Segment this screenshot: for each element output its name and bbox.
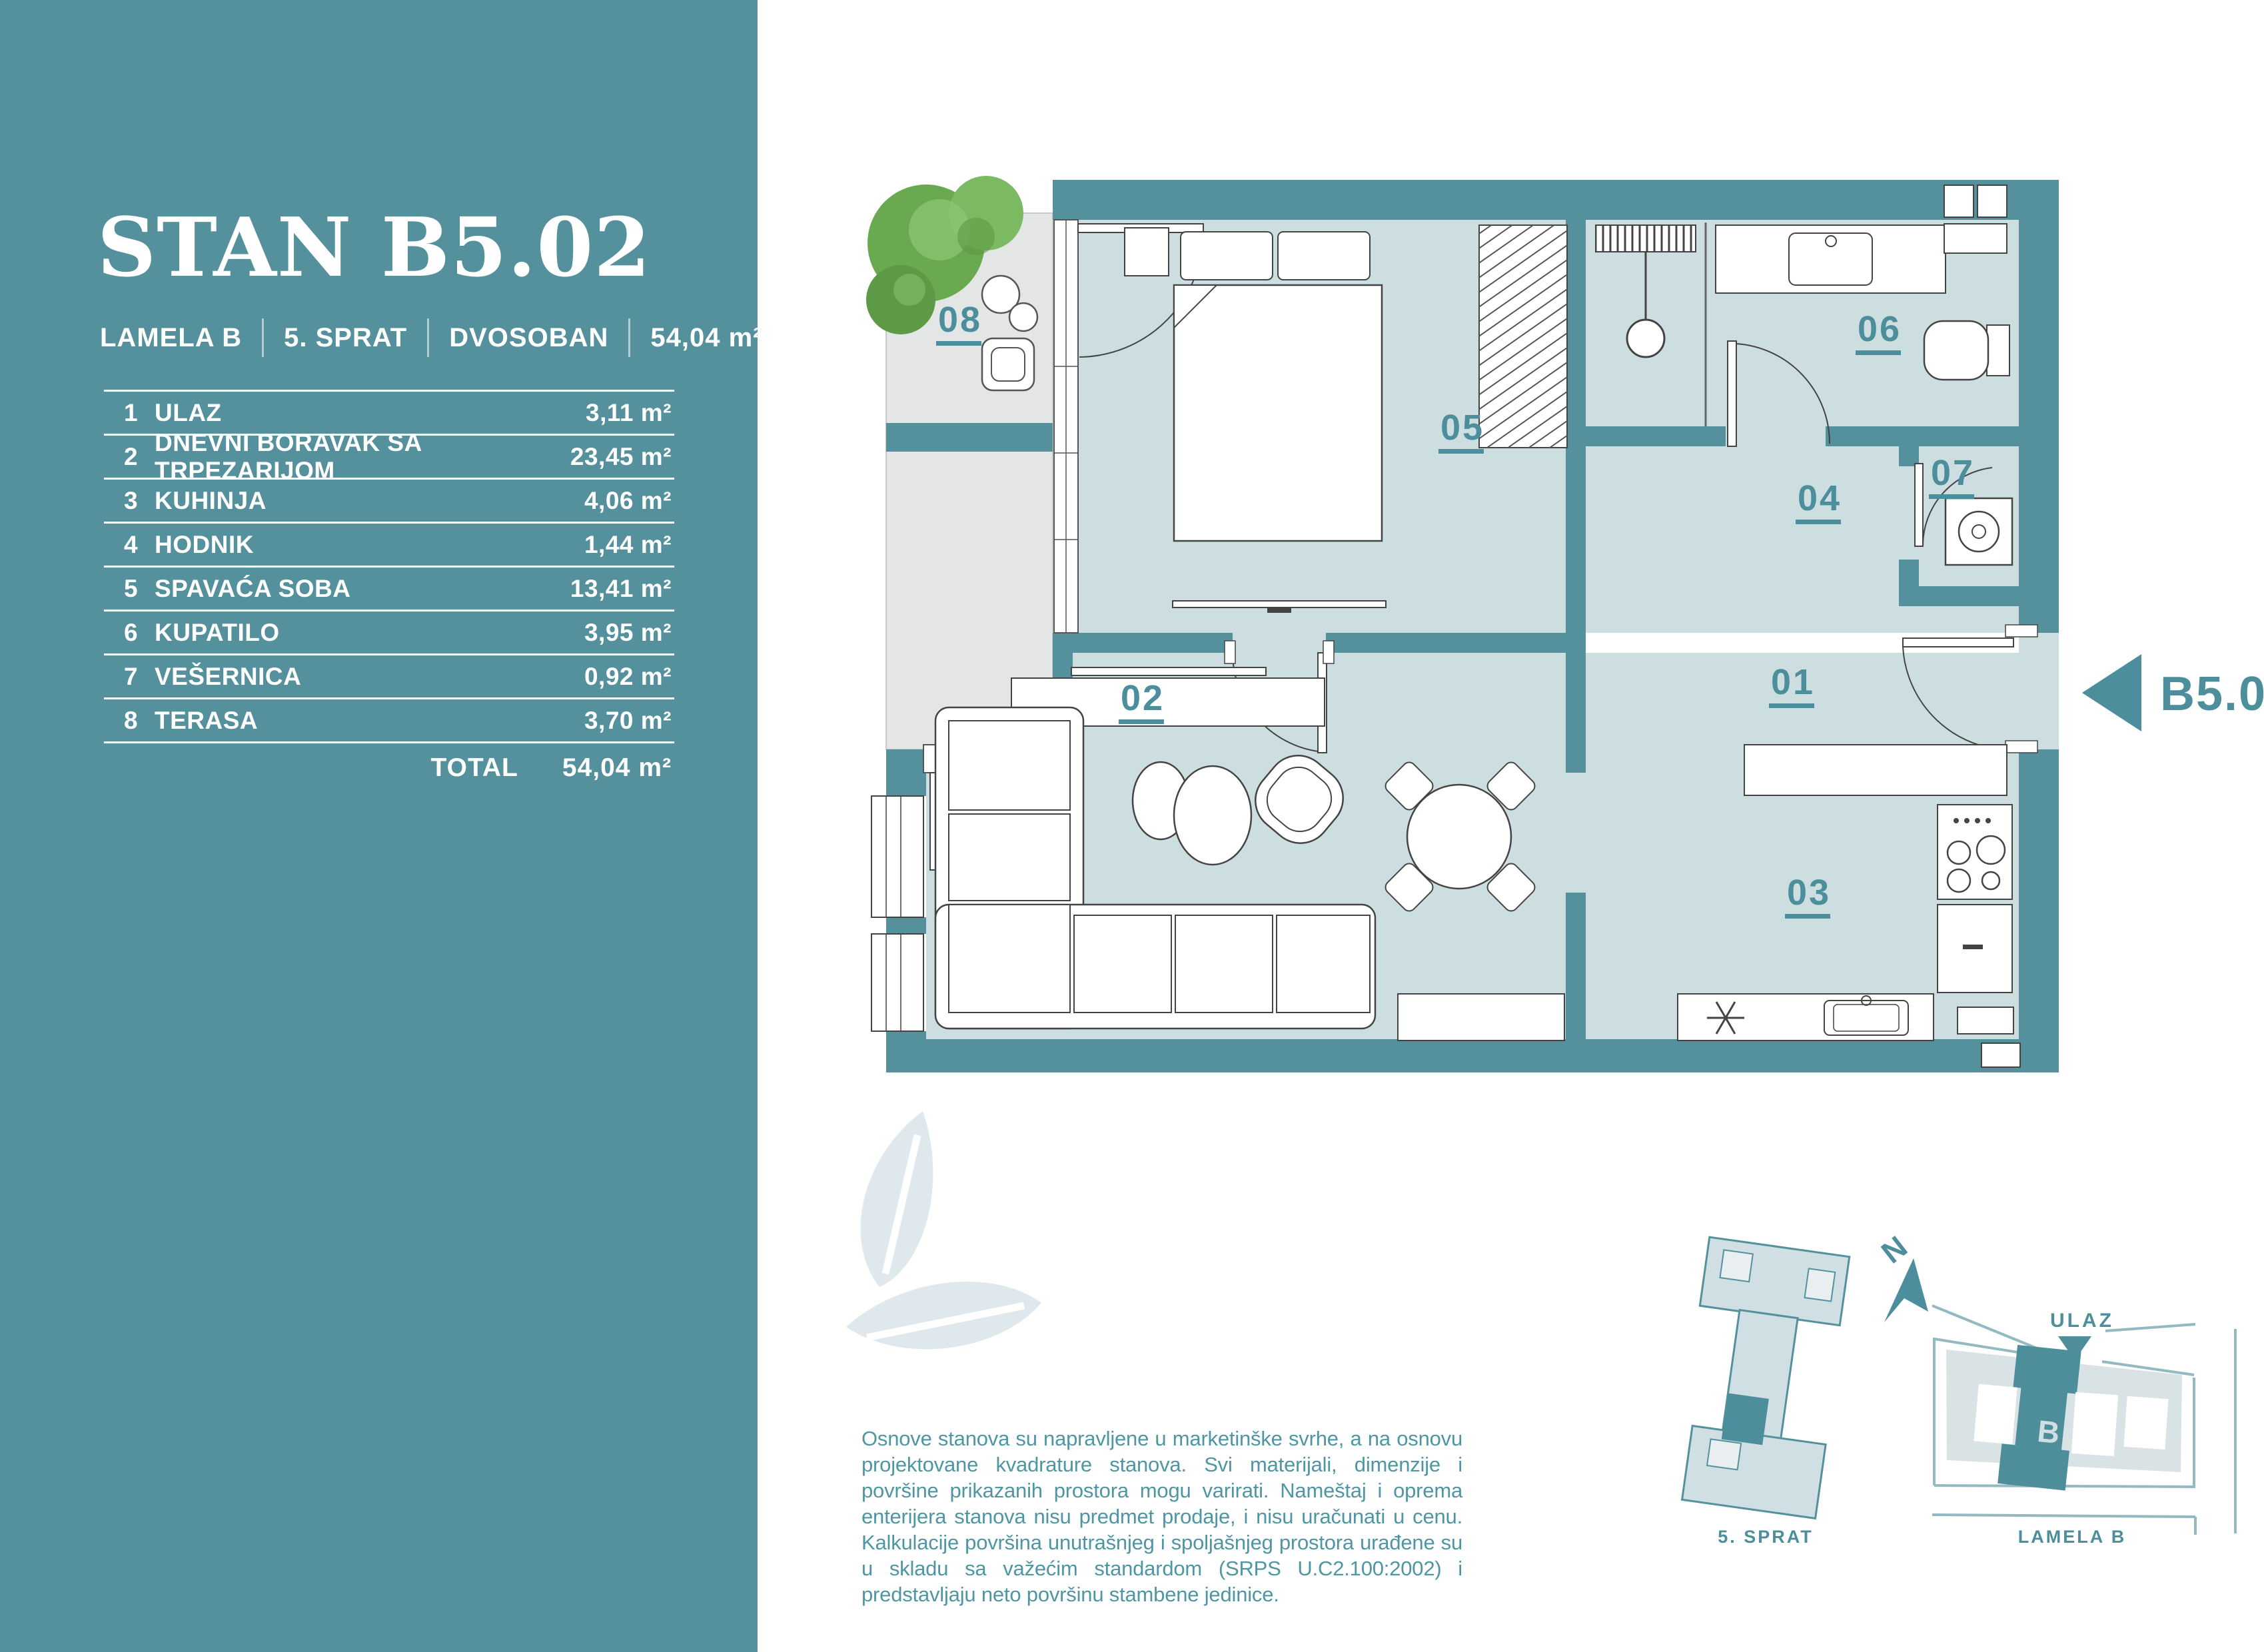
sink <box>1789 233 1872 285</box>
row-name: VEŠERNICA <box>155 663 584 691</box>
pillow <box>1181 232 1273 280</box>
bedroom-tv-stand <box>1267 608 1291 613</box>
room-label-hodnik: 04 <box>1798 478 1842 518</box>
kitchen-shaft <box>1958 1007 2013 1034</box>
terrace-table-small <box>1009 303 1037 331</box>
room-label-vesernica: 07 <box>1931 453 1975 493</box>
living-windows <box>871 796 926 1031</box>
entrance-label: ULAZ <box>2050 1310 2114 1332</box>
table-row: 2 DNEVNI BORAVAK SA TRPEZARIJOM 23,45 m² <box>104 436 674 480</box>
row-num: 2 <box>104 443 155 471</box>
meta-divider <box>628 318 630 357</box>
north-arrow-icon <box>1884 1258 1928 1322</box>
meta-lamela: LAMELA B <box>100 323 242 353</box>
room-label-dnevni: 02 <box>1121 678 1165 718</box>
terrace-chair <box>982 338 1034 390</box>
building-letter: B <box>2035 1414 2061 1450</box>
wall-bottom <box>886 1039 2059 1072</box>
row-name: SPAVAĆA SOBA <box>155 575 570 603</box>
toilet-tank <box>1987 325 2009 376</box>
row-area: 4,06 m² <box>584 487 674 515</box>
row-area: 0,92 m² <box>584 663 674 691</box>
balcony-window-wall <box>1054 220 1078 633</box>
toilet <box>1924 321 1988 380</box>
row-num: 8 <box>104 707 155 735</box>
row-area: 1,44 m² <box>584 531 674 559</box>
kitchen-shaft <box>1981 1043 2020 1067</box>
unit-arrow-icon <box>2082 654 2141 731</box>
row-num: 1 <box>104 399 155 427</box>
unit-label: B5.02 <box>2160 667 2264 721</box>
pillow <box>1278 232 1370 280</box>
row-name: DNEVNI BORAVAK SA TRPEZARIJOM <box>155 429 570 485</box>
dining-table <box>1407 785 1511 889</box>
table-row: 8 TERASA 3,70 m² <box>104 699 674 743</box>
floor-minimap <box>1662 1236 1869 1522</box>
leaf-watermark <box>823 1106 1049 1399</box>
row-name: KUHINJA <box>155 487 584 515</box>
wall-entry-stub <box>1566 653 1586 773</box>
disclaimer-text: Osnove stanova su napravljene u marketin… <box>861 1426 1462 1607</box>
bedroom-tv <box>1173 601 1386 608</box>
wardrobe-hatch <box>1479 225 1567 448</box>
shower-head-icon <box>1627 320 1664 357</box>
room-label-spavaca: 05 <box>1440 408 1484 448</box>
row-area: 3,95 m² <box>584 619 674 647</box>
table-total-row: TOTAL 54,04 m² <box>104 743 674 793</box>
room-table: 1 ULAZ 3,11 m² 2 DNEVNI BORAVAK SA TRPEZ… <box>104 390 674 793</box>
tv <box>1071 667 1266 675</box>
terrace-divider <box>886 423 1053 452</box>
coffee-table <box>1174 766 1251 865</box>
wall-kitchen-stub <box>1566 893 1586 1039</box>
brochure-page: STAN B5.02 LAMELA B 5. SPRAT DVOSOBAN 54… <box>0 0 2264 1652</box>
meta-floor: 5. SPRAT <box>284 323 407 353</box>
total-label: TOTAL <box>431 753 518 783</box>
room-label-ulaz: 01 <box>1771 662 1815 702</box>
room-label-kupatilo: 06 <box>1858 309 1902 349</box>
row-num: 5 <box>104 575 155 603</box>
wall-top <box>1053 180 2039 220</box>
meta-area: 54,04 m² <box>650 323 762 353</box>
row-area: 3,70 m² <box>584 707 674 735</box>
table-row: 4 HODNIK 1,44 m² <box>104 524 674 568</box>
row-area: 23,45 m² <box>570 443 674 471</box>
row-name: ULAZ <box>155 399 586 427</box>
total-area: 54,04 m² <box>562 753 672 783</box>
apartment-meta: LAMELA B 5. SPRAT DVOSOBAN 54,04 m² <box>100 318 762 357</box>
table-row: 7 VEŠERNICA 0,92 m² <box>104 655 674 699</box>
meta-divider <box>427 318 429 357</box>
wall-laundry-bottom <box>1899 586 2039 606</box>
bed <box>1174 285 1382 541</box>
meta-type: DVOSOBAN <box>449 323 608 353</box>
row-area: 13,41 m² <box>570 575 674 603</box>
site-minimap-caption: LAMELA B <box>1926 1527 2219 1547</box>
washing-machine <box>1946 498 2012 565</box>
row-area: 3,11 m² <box>586 399 674 427</box>
minimap-unit-highlight <box>1722 1393 1769 1445</box>
table-row: 6 KUPATILO 3,95 m² <box>104 612 674 655</box>
table-row: 5 SPAVAĆA SOBA 13,41 m² <box>104 568 674 612</box>
room-label-kuhinja: 03 <box>1787 873 1831 913</box>
row-num: 4 <box>104 531 155 559</box>
row-num: 6 <box>104 619 155 647</box>
floor-minimap-caption: 5. SPRAT <box>1662 1527 1869 1547</box>
wall-bedroom-right <box>1566 220 1586 653</box>
sidebar: STAN B5.02 LAMELA B 5. SPRAT DVOSOBAN 54… <box>0 0 758 1652</box>
room-label-terasa: 08 <box>938 300 982 340</box>
row-name: KUPATILO <box>155 619 584 647</box>
row-num: 7 <box>104 663 155 691</box>
unit-pointer: B5.02 <box>2082 654 2264 731</box>
leaf-icon <box>861 1111 933 1287</box>
hall-closet <box>1744 745 2007 795</box>
meta-divider <box>262 318 264 357</box>
floor-plan: 08 05 06 07 04 01 02 03 B5.02 <box>859 167 2264 1072</box>
apartment-title: STAN B5.02 <box>97 206 651 288</box>
row-name: TERASA <box>155 707 584 735</box>
nightstand <box>1125 228 1169 276</box>
compass-n-label: N <box>1875 1229 1914 1270</box>
row-num: 3 <box>104 487 155 515</box>
row-name: HODNIK <box>155 531 584 559</box>
table-row: 3 KUHINJA 4,06 m² <box>104 480 674 524</box>
sideboard <box>1398 994 1564 1040</box>
